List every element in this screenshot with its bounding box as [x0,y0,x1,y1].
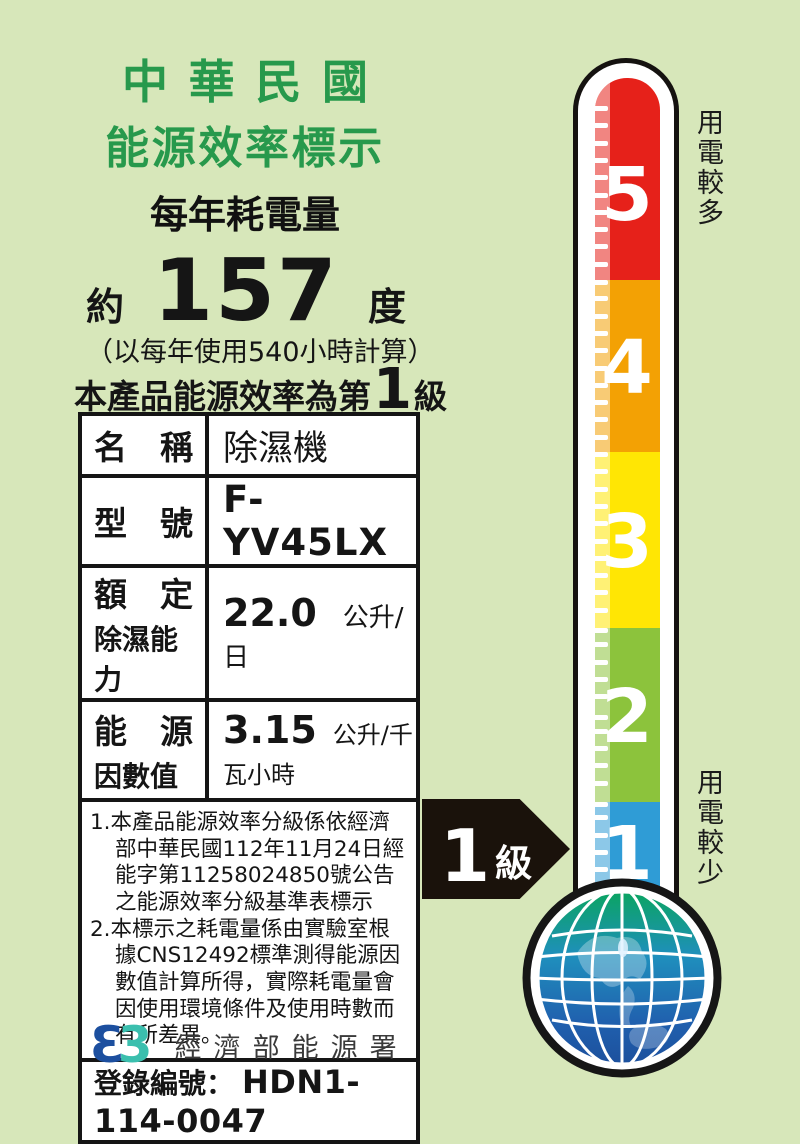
spec-name-label: 名 稱 [80,414,207,476]
spec-name-value: 除濕機 [207,414,418,476]
grade-statement-grade: 1 [373,362,412,418]
scale-number-2: 2 [581,677,673,757]
scale-number-4: 4 [581,328,673,408]
note-1: 1.本產品能源效率分級係依經濟部中華民國112年11月24日經能字第112580… [90,810,408,917]
consumption-value: 157 [153,248,339,334]
consumption-prefix: 約 [86,276,124,331]
table-row: 名 稱 除濕機 [80,414,418,476]
annual-consumption-heading: 每年耗電量 [40,184,450,239]
table-row: 能 源 因數值 3.15公升/千瓦小時 [80,700,418,800]
consumption-unit: 度 [368,276,406,331]
scale-number-5: 5 [581,155,673,235]
spec-energy-factor-value: 3.15公升/千瓦小時 [207,700,418,800]
spec-energy-factor-label: 能 源 因數值 [80,700,207,800]
table-row: 額 定 除濕能力 22.0公升/日 [80,566,418,700]
arrow-grade-number: 1 [440,822,490,890]
spec-model-label: 型 號 [80,476,207,566]
spec-capacity-label: 額 定 除濕能力 [80,566,207,700]
annual-consumption-value-row: 約 157 度 [86,248,406,334]
grade-statement: 本產品能源效率為第 1 級 [74,362,447,418]
grade-statement-prefix: 本產品能源效率為第 [74,370,371,418]
table-row: 型 號 F-YV45LX [80,476,418,566]
scale-number-3: 3 [581,502,673,582]
footer: Ɛ3 經濟部能源署 [90,1020,409,1070]
label-more-power: 用電較多 [688,108,727,228]
globe-icon [522,878,722,1078]
label-less-power: 用電較少 [688,768,727,888]
spec-model-value: F-YV45LX [207,476,418,566]
thermometer: 5 4 3 2 1 [573,58,679,928]
grade-statement-suffix: 級 [414,370,447,418]
label-title-country: 中華民國 [40,46,450,112]
spec-capacity-value: 22.0公升/日 [207,566,418,700]
arrow-grade-suffix: 級 [495,833,532,887]
label-title-energy-efficiency: 能源效率標示 [40,112,450,176]
energy-administration-logo-icon: Ɛ3 [90,1020,153,1070]
agency-name: 經濟部能源署 [175,1026,409,1065]
